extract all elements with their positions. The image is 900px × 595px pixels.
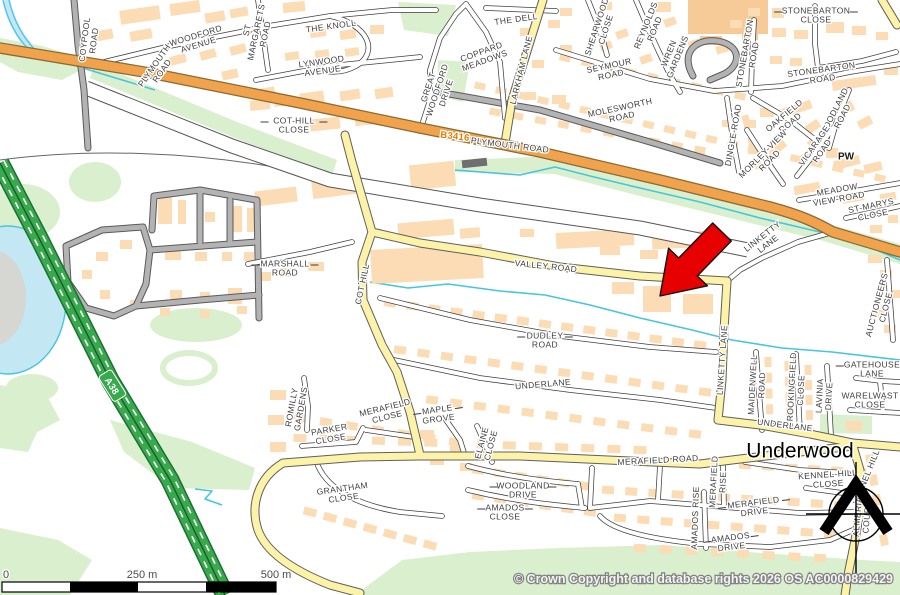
building (403, 534, 418, 545)
road-label: VALLEY ROAD (514, 258, 577, 274)
road-label: AMADOS RISE (689, 486, 701, 550)
building (244, 252, 254, 261)
building (487, 358, 500, 368)
building (857, 115, 874, 130)
building (229, 43, 247, 56)
road-label: MORLEY-VIEWROAD (736, 127, 795, 186)
road-label: WOODFORDAVENUE (168, 23, 226, 58)
building (339, 29, 356, 40)
building (119, 5, 161, 24)
building (888, 215, 898, 223)
building (772, 28, 786, 37)
building (229, 7, 248, 19)
building (770, 56, 782, 64)
building (497, 405, 510, 414)
building (539, 319, 552, 329)
building (464, 355, 477, 365)
building (200, 310, 210, 318)
building (853, 169, 865, 178)
building (178, 200, 186, 224)
building (734, 91, 746, 100)
building (800, 528, 813, 537)
building (160, 308, 170, 316)
building (423, 539, 438, 550)
building (814, 554, 826, 563)
building (627, 331, 640, 341)
building (169, 0, 200, 16)
building (516, 316, 529, 326)
building (521, 408, 534, 417)
road-label: STONEBARTONCLOSE (782, 5, 851, 24)
building (625, 487, 637, 496)
building (581, 444, 594, 452)
building (374, 87, 393, 99)
road-label: LYNWOODAVENUE (298, 53, 346, 79)
building (222, 252, 232, 261)
building (343, 517, 358, 528)
building (628, 378, 641, 388)
building (583, 325, 596, 335)
place-label-underwood: Underwood (746, 439, 853, 462)
building (660, 517, 673, 526)
building (639, 53, 653, 65)
building (555, 443, 568, 451)
building (762, 551, 774, 560)
building (532, 60, 544, 68)
building (593, 417, 606, 426)
building (100, 290, 110, 299)
building (558, 101, 570, 110)
building (545, 411, 558, 420)
building (641, 423, 654, 432)
building (684, 130, 696, 139)
building (283, 1, 306, 13)
building (529, 442, 542, 450)
building (868, 255, 882, 263)
building (637, 515, 650, 524)
building (494, 313, 507, 323)
road-label: AMADOSCLOSE (485, 502, 524, 521)
building (96, 252, 108, 261)
building (473, 401, 486, 410)
building (440, 352, 453, 362)
building (794, 30, 808, 39)
building (221, 68, 239, 80)
scale-bar-segment (70, 582, 138, 592)
building (254, 186, 298, 206)
building (82, 270, 92, 279)
building (805, 395, 812, 405)
building (417, 348, 430, 358)
building (689, 429, 702, 438)
building (787, 498, 799, 507)
building (671, 490, 683, 499)
building (460, 227, 481, 239)
building (503, 441, 516, 449)
building (268, 415, 284, 425)
building (634, 544, 646, 553)
building (748, 8, 760, 16)
building (633, 446, 646, 454)
road-label: WARELWASTCLOSE (841, 390, 898, 409)
map-viewport[interactable]: COYPOOLROADPLYMOUTHROADWOODFORDAVENUESTM… (0, 0, 900, 595)
building (605, 328, 618, 338)
building (804, 365, 811, 375)
building (876, 32, 888, 40)
building (707, 521, 720, 530)
road-label: BROOKINGFIELDCLOSE (784, 352, 807, 428)
building (806, 410, 813, 420)
building (699, 387, 712, 397)
road-label: COT HILL (353, 263, 371, 305)
building (199, 48, 217, 61)
building (511, 361, 524, 371)
building (832, 75, 877, 91)
building (683, 294, 713, 314)
building (534, 365, 547, 375)
building (308, 262, 324, 271)
road-label: DUDLEYROAD (527, 330, 564, 349)
building (614, 514, 627, 523)
building (846, 421, 862, 431)
building (870, 225, 882, 233)
map-canvas[interactable]: COYPOOLROADPLYMOUTHROADWOODFORDAVENUESTM… (0, 0, 900, 595)
scale-label-500: 500 m (261, 569, 292, 581)
building (204, 10, 225, 23)
building (158, 196, 172, 224)
building (754, 524, 767, 533)
scale-bar-segment (206, 582, 276, 592)
copyright-attribution: © Crown Copyright and database rights 20… (514, 572, 893, 586)
building (675, 384, 688, 394)
building (649, 334, 662, 344)
building (660, 545, 672, 554)
building (195, 252, 207, 261)
building (569, 414, 582, 423)
building (581, 371, 594, 381)
building (663, 125, 675, 134)
building (741, 114, 750, 125)
road-label: COYPOOLROAD (77, 17, 102, 64)
building (642, 120, 654, 129)
scale-label-0: 0 (3, 569, 9, 581)
road-label: SHEARWOODCLOSE (582, 0, 619, 60)
road-label: GATEHOUSELANE (844, 359, 900, 378)
building (617, 420, 630, 429)
building (363, 523, 378, 534)
building (548, 20, 560, 28)
building (777, 526, 790, 535)
building (383, 528, 398, 539)
building (409, 161, 456, 191)
building (879, 534, 889, 546)
building (293, 434, 306, 442)
building (640, 250, 658, 259)
building (339, 89, 360, 102)
building (270, 442, 286, 452)
building (120, 240, 132, 249)
building (602, 486, 614, 495)
building (535, 116, 547, 125)
building (665, 426, 678, 435)
building (612, 282, 634, 294)
building (730, 20, 742, 28)
building (372, 437, 385, 445)
building (323, 512, 338, 523)
building (303, 506, 318, 517)
road-label: PW (838, 152, 855, 163)
building (764, 357, 771, 367)
building (560, 8, 572, 16)
road-label: LAVINIADRIVE (813, 378, 834, 414)
building (474, 81, 486, 90)
building (705, 135, 717, 144)
road-label: COT-HILLCLOSE (273, 115, 314, 134)
building (790, 58, 802, 66)
building (788, 552, 800, 561)
building (426, 395, 439, 404)
building (863, 161, 883, 174)
building (663, 16, 677, 28)
building (600, 246, 620, 255)
road-label: DINGLE ROAD (723, 103, 744, 167)
building (852, 26, 866, 35)
building (520, 229, 534, 237)
building (270, 390, 286, 400)
building (537, 96, 549, 105)
building (237, 306, 247, 314)
building (394, 345, 407, 355)
building (652, 381, 665, 391)
road-label: MERAFIELDDRIVE (727, 494, 781, 520)
road-label: B3416 (440, 130, 471, 145)
building (615, 28, 629, 40)
building (874, 173, 886, 182)
building (205, 212, 215, 222)
building (811, 499, 823, 508)
building (170, 290, 182, 299)
scale-label-250: 250 m (127, 569, 158, 581)
building (605, 374, 618, 384)
building (766, 404, 773, 414)
building (370, 25, 384, 34)
building (345, 47, 360, 57)
building (671, 337, 684, 347)
building (607, 445, 620, 453)
building (129, 28, 152, 42)
building (489, 108, 501, 117)
